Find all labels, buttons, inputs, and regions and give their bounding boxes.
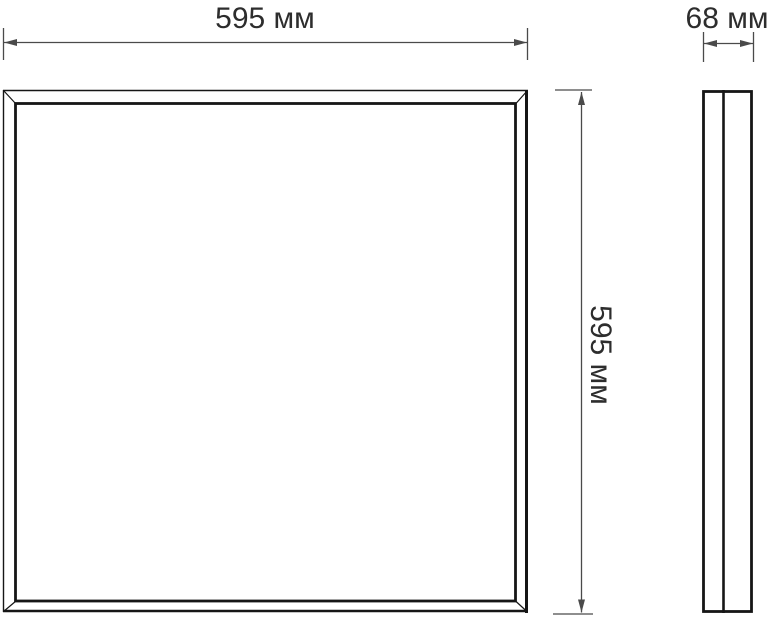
depth-dimension-label: 68 мм [627, 1, 768, 37]
side-view-outline [704, 92, 752, 612]
depth-dimension-arrow-left [704, 40, 717, 47]
front-view-inner-frame [16, 104, 516, 602]
height-dimension-label: 595 мм [582, 255, 618, 455]
width-dimension-label: 595 мм [165, 1, 365, 37]
front-view [3, 90, 528, 613]
width-dimension-arrow-left [4, 39, 17, 46]
width-dimension-arrow-right [514, 39, 527, 46]
panel-line-drawing [0, 0, 768, 621]
front-view-bevel-top-left [4, 91, 17, 105]
height-dimension-arrow-bottom [578, 600, 585, 613]
product-dimension-diagram: 595 мм 68 мм 595 мм [0, 0, 768, 621]
height-dimension-arrow-top [578, 92, 585, 105]
depth-dimension-arrow-right [740, 40, 753, 47]
side-view [704, 90, 752, 613]
